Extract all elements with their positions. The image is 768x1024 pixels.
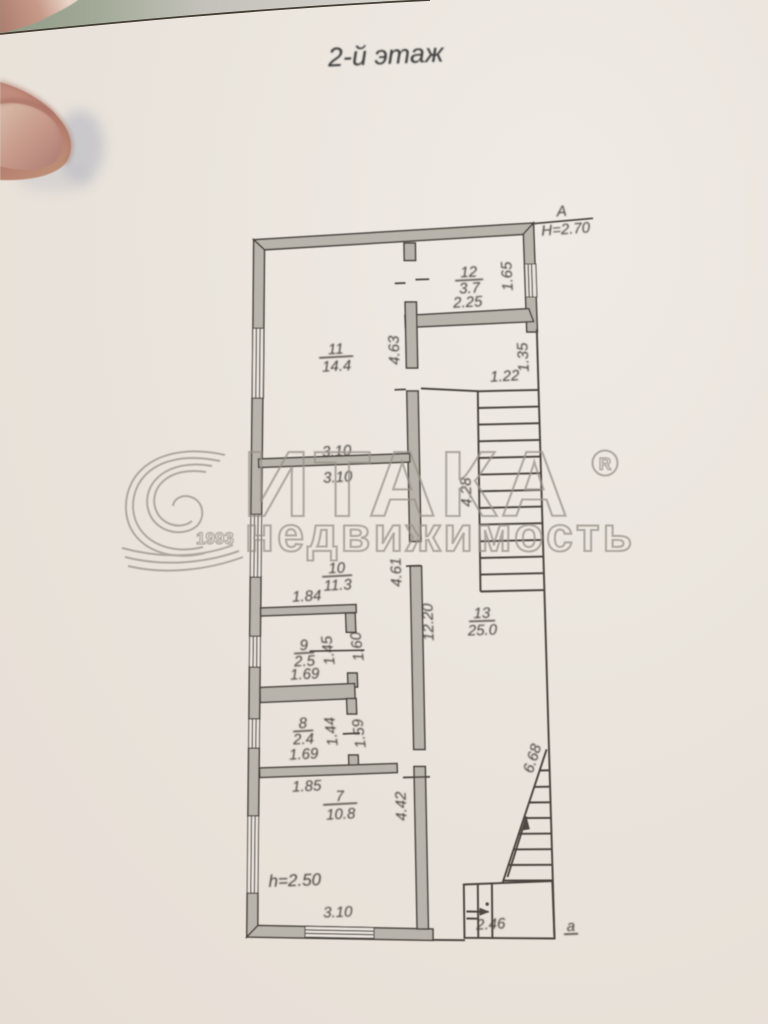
svg-text:а: а bbox=[566, 918, 575, 935]
svg-text:1.65: 1.65 bbox=[498, 261, 517, 292]
svg-text:1.69: 1.69 bbox=[290, 665, 321, 684]
svg-text:2.25: 2.25 bbox=[452, 293, 484, 312]
svg-text:h=2.50: h=2.50 bbox=[268, 870, 322, 891]
svg-text:А: А bbox=[555, 203, 567, 221]
svg-text:1.69: 1.69 bbox=[289, 745, 320, 764]
svg-text:3.10: 3.10 bbox=[323, 903, 353, 921]
svg-text:2-й этаж: 2-й этаж bbox=[326, 37, 445, 72]
svg-text:25.0: 25.0 bbox=[467, 621, 498, 639]
svg-text:1.44: 1.44 bbox=[321, 716, 341, 747]
svg-text:11: 11 bbox=[328, 341, 344, 359]
svg-text:8: 8 bbox=[298, 715, 308, 732]
svg-text:11.3: 11.3 bbox=[323, 576, 353, 594]
svg-text:1.35: 1.35 bbox=[514, 342, 533, 373]
svg-text:10.8: 10.8 bbox=[326, 805, 357, 824]
svg-text:14.4: 14.4 bbox=[322, 357, 352, 376]
svg-text:7: 7 bbox=[335, 788, 345, 805]
svg-text:1.84: 1.84 bbox=[292, 587, 322, 606]
svg-text:9: 9 bbox=[299, 637, 309, 654]
svg-text:13: 13 bbox=[473, 605, 491, 623]
svg-text:1993: 1993 bbox=[196, 529, 234, 548]
svg-text:10: 10 bbox=[328, 560, 346, 578]
svg-text:2.46: 2.46 bbox=[475, 915, 507, 934]
svg-text:Н=2.70: Н=2.70 bbox=[541, 219, 592, 239]
svg-text:R: R bbox=[599, 455, 611, 474]
svg-text:4.42: 4.42 bbox=[392, 791, 410, 821]
svg-text:недвижимость: недвижимость bbox=[245, 509, 635, 562]
svg-text:12.20: 12.20 bbox=[419, 602, 437, 641]
svg-text:4.63: 4.63 bbox=[385, 335, 403, 365]
svg-text:1.85: 1.85 bbox=[292, 777, 323, 796]
svg-text:1.45: 1.45 bbox=[318, 634, 339, 666]
svg-text:1.60: 1.60 bbox=[347, 630, 368, 662]
svg-text:1.59: 1.59 bbox=[349, 717, 370, 749]
